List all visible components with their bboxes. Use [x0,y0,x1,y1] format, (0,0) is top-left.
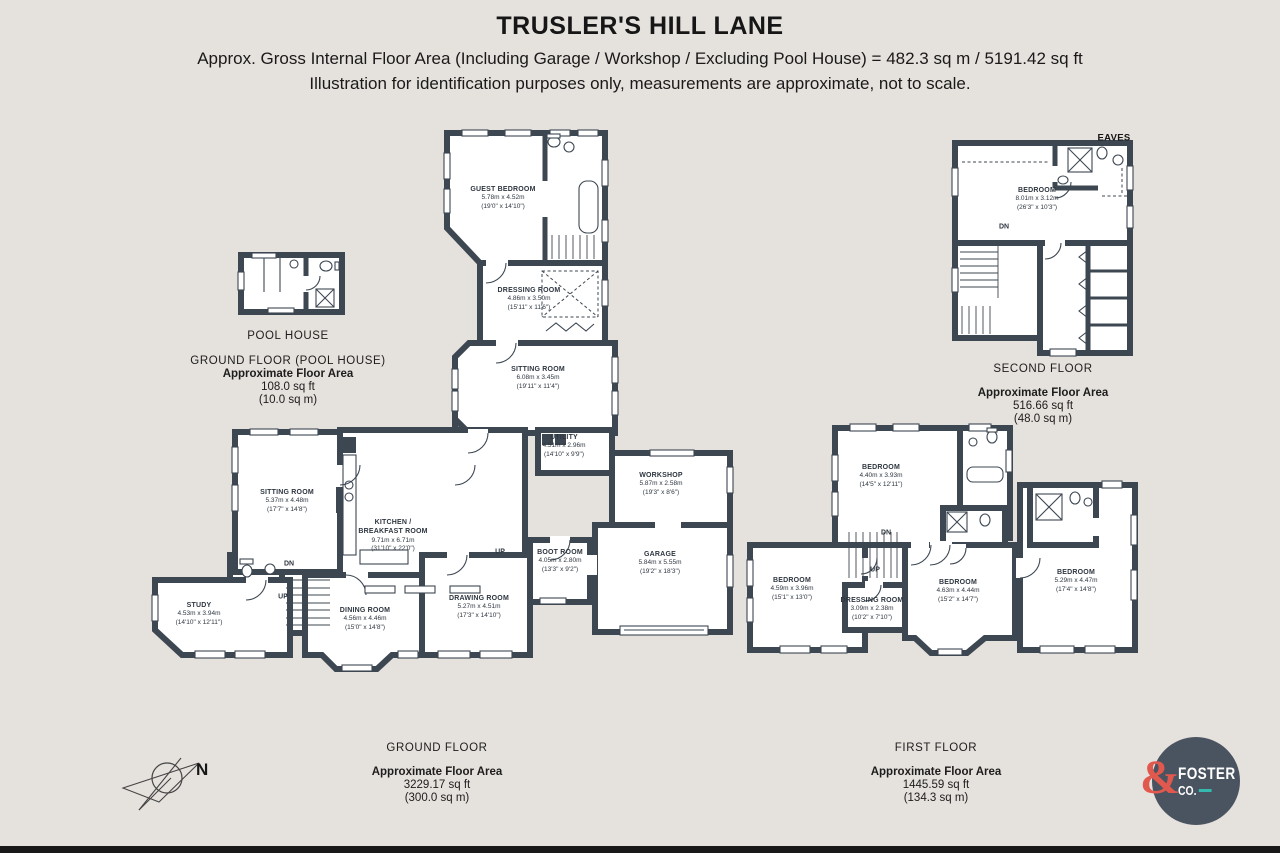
toilet-icon [1097,147,1107,159]
toilet-icon [320,261,332,271]
logo-accent-line [1199,789,1212,792]
stairs-down-label: DN [999,224,1009,231]
eaves-label: EAVES [1097,133,1130,144]
first-floor-plan [745,420,1140,665]
logo-co: CO. [1178,784,1197,797]
room-label-guest-bedroom: GUEST BEDROOM 5.78m x 4.52m (19'0" x 14'… [470,185,535,211]
bottom-bar [0,846,1280,853]
room-label-dressing-gf: DRESSING ROOM 4.86m x 3.50m (15'11" x 11… [498,286,561,312]
room-label-drawing: DRAWING ROOM 5.27m x 4.51m (17'3" x 14'1… [449,594,509,620]
room-label-dressing-ff: DRESSING ROOM 3.09m x 2.38m (10'2" x 7'1… [841,596,904,622]
room-label-utility: UTILITY 4.51m x 2.96m (14'10" x 9'9") [543,433,586,459]
page-title: TRUSLER'S HILL LANE [0,12,1280,41]
stair-block [955,243,1040,338]
sink-icon [969,438,977,446]
stairs-up-label: UP [870,567,880,574]
foster-co-logo: & FOSTER CO. [1152,737,1240,825]
disclaimer-line: Illustration for identification purposes… [0,74,1280,94]
first-floor-caption: FIRST FLOOR Approximate Floor Area 1445.… [871,742,1002,805]
stairs-down-label: DN [284,561,294,568]
room-label-bedroom-three: BEDROOM 4.63m x 4.44m (15'2" x 14'7") [937,578,980,604]
room-label-bedroom-second: BEDROOM 8.01m x 3.12m (26'3" x 10'3") [1016,186,1059,212]
sink-icon [1113,155,1123,165]
logo-name: FOSTER [1178,765,1236,782]
bathtub-icon [967,467,1003,482]
room-label-sitting-left: SITTING ROOM 5.37m x 4.48m (17'7" x 14'8… [260,488,314,514]
room-label-garage: GARAGE 5.84m x 5.55m (19'2" x 18'3") [639,550,682,576]
room-label-boot-room: BOOT ROOM 4.05m x 2.80m (13'3" x 9'2") [537,548,583,574]
room-garage [595,525,730,632]
room-label-bedroom-four: BEDROOM 5.29m x 4.47m (17'4" x 14'8") [1055,568,1098,594]
pool-house-name: POOL HOUSE [247,330,329,342]
room-label-dining: DINING ROOM 4.56m x 4.46m (15'0" x 14'8"… [340,606,390,632]
room-label-bedroom-one: BEDROOM 4.40m x 3.93m (14'5" x 12'11") [859,463,902,489]
range-cooker [343,437,356,453]
pool-house-plan [238,252,346,316]
gross-area-line: Approx. Gross Internal Floor Area (Inclu… [0,49,1280,69]
room-label-bedroom-two: BEDROOM 4.59m x 3.96m (15'1" x 13'0") [771,576,814,602]
stairs-up-label: UP [495,549,505,556]
pool-house-caption: GROUND FLOOR (POOL HOUSE) Approximate Fl… [190,355,385,407]
toilet-icon [1070,492,1080,504]
toilet-icon [987,431,997,443]
toilet-icon [1058,176,1068,184]
north-label: N [196,760,208,780]
second-floor-caption: SECOND FLOOR Approximate Floor Area 516.… [978,363,1109,426]
sink-icon [564,142,574,152]
ground-floor-caption: GROUND FLOOR Approximate Floor Area 3229… [372,742,503,805]
floorplan-page: TRUSLER'S HILL LANE Approx. Gross Intern… [0,0,1280,853]
room-label-workshop: WORKSHOP 5.87m x 2.58m (19'3" x 8'6") [639,471,683,497]
stairs-up-label: UP [278,594,288,601]
sink-icon [1084,498,1092,506]
room-label-study: STUDY 4.53m x 3.94m (14'10" x 12'11") [176,601,223,627]
room-label-sitting-mid: SITTING ROOM 6.08m x 3.45m (19'11" x 11'… [511,365,565,391]
bathtub-icon [579,181,598,233]
logo-ampersand: & [1140,754,1180,802]
toilet-icon [242,565,252,577]
sink-icon [265,564,275,574]
toilet-icon [980,514,990,526]
fireplace [336,487,343,513]
second-floor-plan [950,138,1135,360]
room-label-kitchen: KITCHEN / BREAKFAST ROOM 9.71m x 6.71m (… [355,518,431,554]
stairs-down-label: DN [881,530,891,537]
